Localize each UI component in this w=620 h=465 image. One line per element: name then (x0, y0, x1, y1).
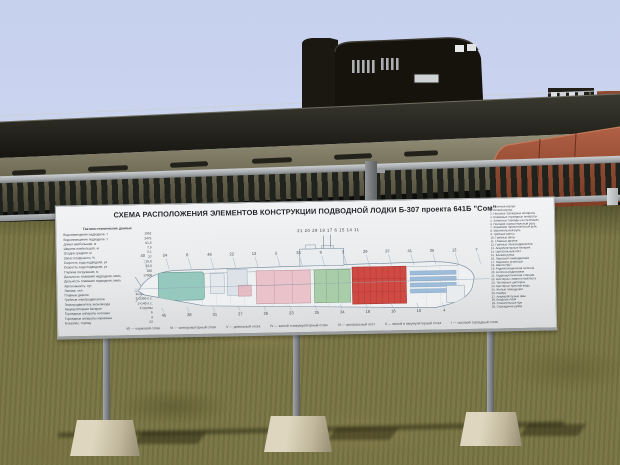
callout-number: 16 (391, 308, 396, 313)
callout-number: 7 (475, 247, 478, 252)
callout-leader-line (213, 307, 215, 312)
callout-leader-line (277, 256, 280, 267)
compartment-green (314, 269, 351, 303)
compartment-red (352, 266, 407, 304)
legend-list: 1. Прочный корпус2. Лёгкий корпус3. Носо… (490, 205, 552, 310)
callout-number: 24 (163, 253, 168, 258)
callout-number: 10 (417, 308, 422, 313)
concrete-block-middle (264, 416, 332, 452)
concrete-block-right (460, 412, 522, 446)
photo-of-submarine-museum-sign: СХЕМА РАСПОЛОЖЕНИЯ ЭЛЕМЕНТОВ КОНСТРУКЦИИ… (0, 0, 620, 465)
block-shadow (328, 428, 398, 440)
submarine-diagram: 21 20 28 19 17 6 15 14 11 (133, 221, 491, 320)
compartment-caption: VII — кормовой отсекVI — электромоторный… (126, 320, 498, 330)
compartment-teal (158, 272, 205, 301)
compartment-label: IV — жилой и аккумуляторный отсек (270, 324, 328, 329)
callout-number: 23 (289, 310, 294, 315)
sign-post-middle (293, 327, 300, 420)
callout-leader-line (162, 308, 164, 313)
sign-title: СХЕМА РАСПОЛОЖЕНИЯ ЭЛЕМЕНТОВ КОНСТРУКЦИИ… (56, 202, 554, 220)
concrete-block-left (70, 420, 140, 456)
callout-number: 31 (213, 312, 218, 317)
callout-number: 41 (407, 248, 412, 253)
diagram-top-numbers: 21 20 28 19 17 6 15 14 11 (297, 227, 360, 233)
compartment-label: III — центральный пост (338, 323, 375, 327)
callout-number: 29 (363, 249, 368, 254)
callout-number: 27 (238, 311, 243, 316)
compartment-pink (256, 270, 311, 304)
compartment-label: II — жилой и аккумуляторный отсек (385, 322, 441, 327)
callout-number: 45 (162, 313, 167, 318)
callout-number: 18 (366, 309, 371, 314)
spec-label: Боезапас, торпед (65, 321, 91, 326)
callout-number: 34 (340, 309, 345, 314)
compartment-label: VII — кормовой отсек (126, 327, 160, 331)
callout-number: 4 (443, 307, 446, 312)
callout-leader-line (166, 259, 169, 270)
callout-number: 38 (187, 312, 192, 317)
block-shadow (520, 424, 586, 436)
callout-number: 46 (207, 252, 212, 257)
callout-leader-line (238, 306, 240, 311)
fence-post-bracket (377, 168, 385, 173)
callout-number: 22 (229, 251, 234, 256)
spec-value: 22 (147, 320, 153, 325)
callout-leader-line (144, 259, 147, 270)
callout-number: 40 (140, 253, 145, 258)
legend-item: 30. Ограждение рубки (492, 305, 552, 310)
callout-number: 5 (275, 251, 278, 256)
callout-leader-line (188, 258, 191, 269)
callout-number: 37 (385, 248, 390, 253)
sign-post-right (487, 323, 494, 415)
compartment-label: I — носовой торпедный отсек (451, 320, 498, 324)
callout-leader-line (187, 307, 189, 312)
legend-wrap: 1. Прочный корпус2. Лёгкий корпус3. Носо… (490, 205, 552, 321)
block-shadow (134, 432, 206, 444)
callout-number: 3 (342, 249, 345, 254)
information-sign-board: СХЕМА РАСПОЛОЖЕНИЯ ЭЛЕМЕНТОВ КОНСТРУКЦИИ… (55, 196, 557, 339)
callout-leader-line (211, 258, 214, 269)
callout-number: 12 (452, 247, 457, 252)
callout-leader-line (478, 253, 481, 264)
callout-leader-line (255, 257, 258, 268)
callout-number: 13 (252, 251, 257, 256)
callout-number: 25 (315, 310, 320, 315)
callout-number: 26 (264, 311, 269, 316)
compartment-caption-wrap: VII — кормовой отсекVI — электромоторный… (126, 320, 498, 332)
spec-row: Боезапас, торпед22 (65, 320, 153, 326)
callout-number: 35 (430, 248, 435, 253)
sign-post-left (103, 330, 110, 424)
callout-leader-line (455, 253, 458, 264)
callout-leader-line (233, 257, 236, 268)
callout-number: 8 (186, 252, 189, 257)
compartment-label: VI — электромоторный отсек (170, 326, 216, 330)
compartment-label: V — дизельный отсек (226, 325, 260, 329)
